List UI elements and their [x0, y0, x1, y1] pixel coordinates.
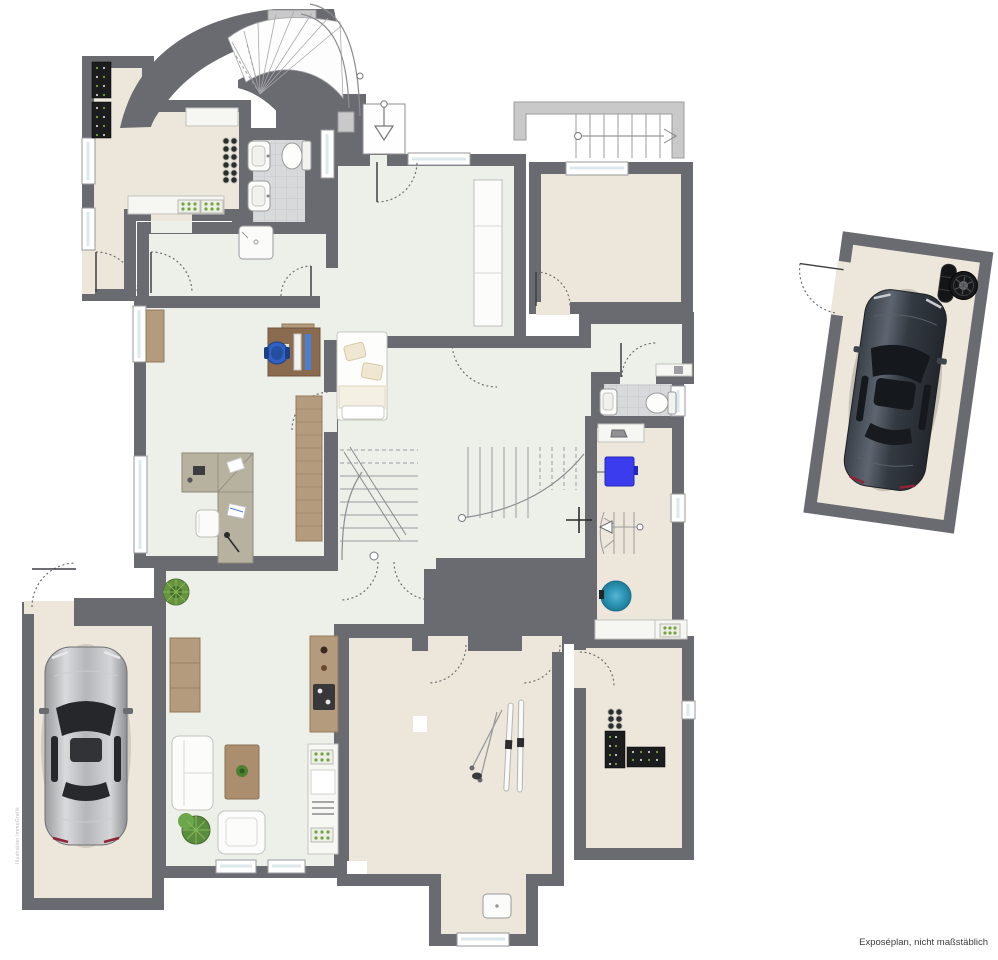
mirror	[39, 708, 49, 714]
car-silver-icon	[39, 644, 133, 848]
pillow-icon	[361, 362, 383, 380]
washbasin-icon	[483, 894, 511, 918]
wall-mass	[424, 558, 594, 644]
window	[566, 162, 628, 175]
bottle-crate-icon	[660, 624, 680, 637]
screen-icon	[305, 334, 311, 370]
entrance-door-symbol	[363, 101, 405, 154]
window	[134, 456, 147, 553]
bed-icon	[337, 332, 387, 420]
top-right-room	[535, 168, 687, 308]
counter-icon	[186, 108, 238, 126]
plant-icon	[163, 578, 189, 606]
toilet-icon	[282, 141, 311, 170]
sofa-icon	[172, 736, 213, 810]
counter-icon	[308, 744, 338, 854]
window	[82, 208, 95, 250]
desk-chair-icon	[196, 510, 219, 537]
book-icon	[193, 466, 205, 475]
shelf-icon	[656, 364, 692, 376]
kitchenette-icon	[310, 636, 338, 732]
floor-plan-page: Exposéplan, nicht maßstäblich Illustrati…	[0, 0, 998, 960]
wardrobe-strip-icon	[296, 396, 322, 541]
window	[216, 860, 256, 873]
toilet-icon	[646, 392, 676, 414]
window	[671, 494, 685, 522]
wine-rack-icon	[627, 747, 665, 767]
blanket-icon	[339, 386, 385, 408]
coffee-table-icon	[225, 745, 259, 799]
armchair-icon	[218, 811, 265, 854]
shelf-icon	[598, 424, 644, 442]
bottle-crate-icon	[311, 750, 333, 764]
sink-icon	[248, 141, 270, 171]
mirror	[123, 708, 133, 714]
window	[133, 306, 146, 362]
sideboard-icon	[146, 310, 164, 362]
window	[321, 130, 334, 178]
shower-icon	[239, 226, 273, 259]
windshield	[56, 701, 116, 736]
monitor-icon	[294, 334, 301, 370]
coffee-machine-icon	[321, 647, 328, 654]
window	[457, 933, 509, 946]
desk-lamp-icon	[224, 532, 230, 538]
iron-icon	[611, 430, 627, 437]
wall-mass	[74, 598, 164, 626]
wine-rack-icon	[92, 102, 111, 138]
bottle-crate-icon	[178, 200, 200, 213]
wardrobe-icon	[474, 180, 502, 326]
sunroof	[70, 738, 102, 762]
plan-caption: Exposéplan, nicht maßstäblich	[859, 937, 988, 948]
window	[82, 138, 95, 184]
watermark: Illustration ImmoGrafik	[15, 807, 21, 864]
mug-icon	[187, 477, 192, 482]
window	[682, 701, 695, 719]
window	[268, 860, 305, 873]
sink-icon	[248, 181, 270, 211]
floor-plan-svg: Exposéplan, nicht maßstäblich Illustrati…	[0, 0, 998, 960]
bottle-crate-icon	[311, 828, 333, 842]
sunroof	[873, 377, 917, 410]
wine-rack-icon	[605, 731, 625, 768]
bottle-crate-icon	[201, 200, 223, 213]
wine-rack-icon	[92, 62, 111, 98]
sink-icon	[600, 389, 617, 415]
sideboard-icon	[170, 638, 200, 712]
stove-icon	[313, 684, 335, 710]
